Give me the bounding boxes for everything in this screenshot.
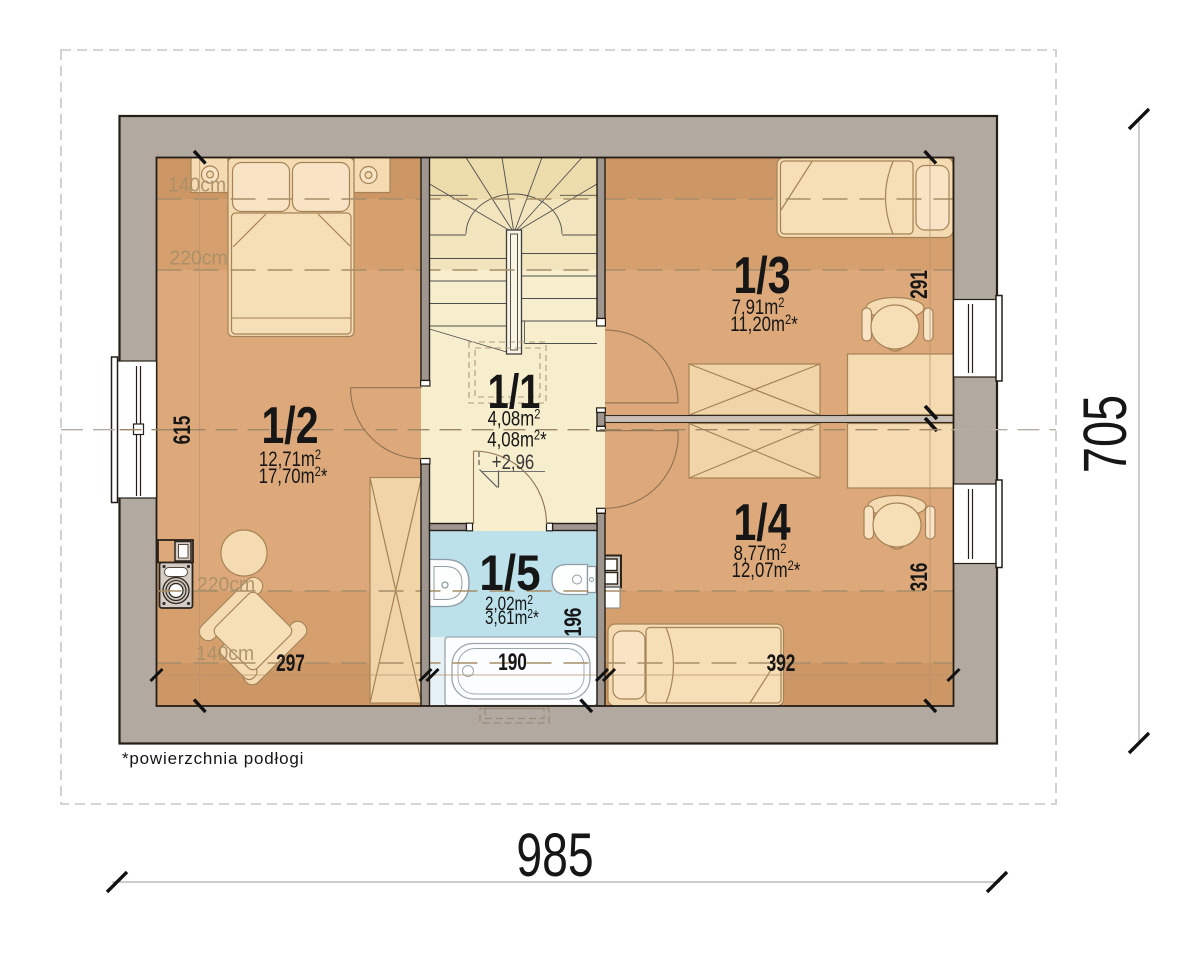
svg-text:*powierzchnia podłogi: *powierzchnia podłogi: [122, 749, 304, 768]
svg-text:392: 392: [767, 650, 796, 676]
svg-text:705: 705: [1071, 395, 1139, 473]
svg-text:1/2: 1/2: [261, 396, 318, 454]
svg-text:291: 291: [906, 270, 932, 299]
svg-text:190: 190: [498, 649, 527, 675]
svg-text:140cm: 140cm: [196, 643, 254, 665]
svg-text:316: 316: [906, 563, 932, 592]
svg-text:196: 196: [560, 608, 586, 637]
svg-text:4,08m2: 4,08m2: [488, 406, 541, 431]
svg-text:140cm: 140cm: [168, 174, 226, 196]
svg-text:985: 985: [516, 822, 593, 890]
svg-text:220cm: 220cm: [197, 574, 255, 596]
svg-text:297: 297: [276, 650, 305, 676]
svg-text:615: 615: [169, 415, 195, 444]
svg-text:220cm: 220cm: [169, 247, 227, 269]
